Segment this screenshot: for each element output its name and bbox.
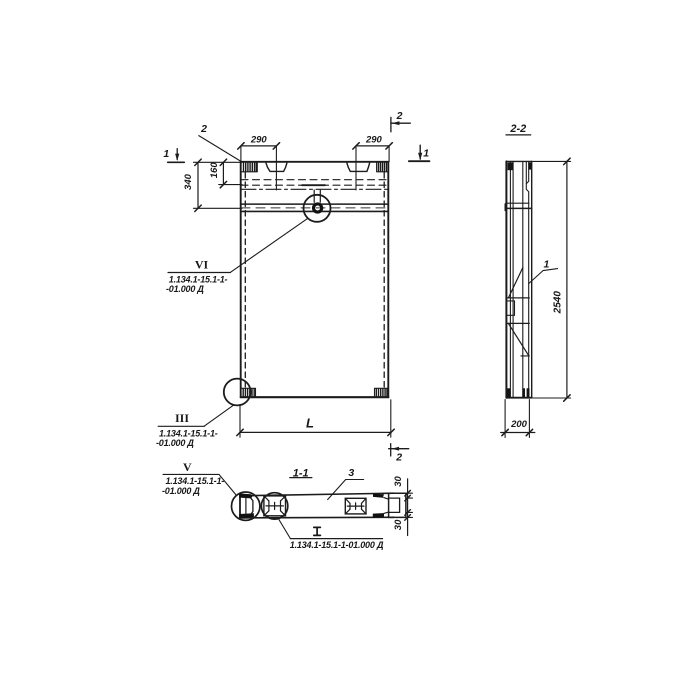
svg-text:2: 2 (200, 123, 207, 135)
svg-text:1: 1 (543, 258, 549, 270)
svg-text:1.134.1-15.1-1-: 1.134.1-15.1-1- (159, 428, 218, 438)
svg-text:1: 1 (163, 148, 169, 160)
svg-text:2: 2 (396, 110, 403, 122)
svg-text:-01.000 Д: -01.000 Д (156, 438, 194, 448)
svg-text:1-1: 1-1 (293, 467, 309, 479)
svg-text:1.134.1-15.1-1-: 1.134.1-15.1-1- (169, 274, 228, 284)
svg-text:2-2: 2-2 (509, 123, 526, 135)
svg-text:200: 200 (510, 419, 528, 430)
svg-text:3: 3 (348, 467, 354, 479)
svg-text:160: 160 (209, 162, 220, 179)
svg-text:2: 2 (395, 452, 402, 464)
svg-text:1.134.1-15.1-1-01.000 Д: 1.134.1-15.1-1-01.000 Д (290, 540, 384, 550)
svg-text:30: 30 (393, 476, 404, 487)
svg-text:L: L (306, 415, 314, 430)
svg-text:1: 1 (423, 148, 429, 160)
svg-text:VI: VI (195, 257, 209, 271)
svg-text:-01.000 Д: -01.000 Д (166, 284, 204, 294)
svg-text:V: V (183, 460, 192, 474)
svg-text:290: 290 (365, 135, 383, 146)
svg-text:2540: 2540 (553, 291, 564, 315)
svg-text:30: 30 (393, 519, 404, 530)
svg-text:340: 340 (183, 173, 194, 190)
svg-text:290: 290 (250, 135, 268, 146)
svg-text:-01.000 Д: -01.000 Д (162, 486, 200, 496)
svg-text:III: III (175, 411, 189, 425)
svg-text:1.134.1-15.1-1-: 1.134.1-15.1-1- (166, 476, 225, 486)
